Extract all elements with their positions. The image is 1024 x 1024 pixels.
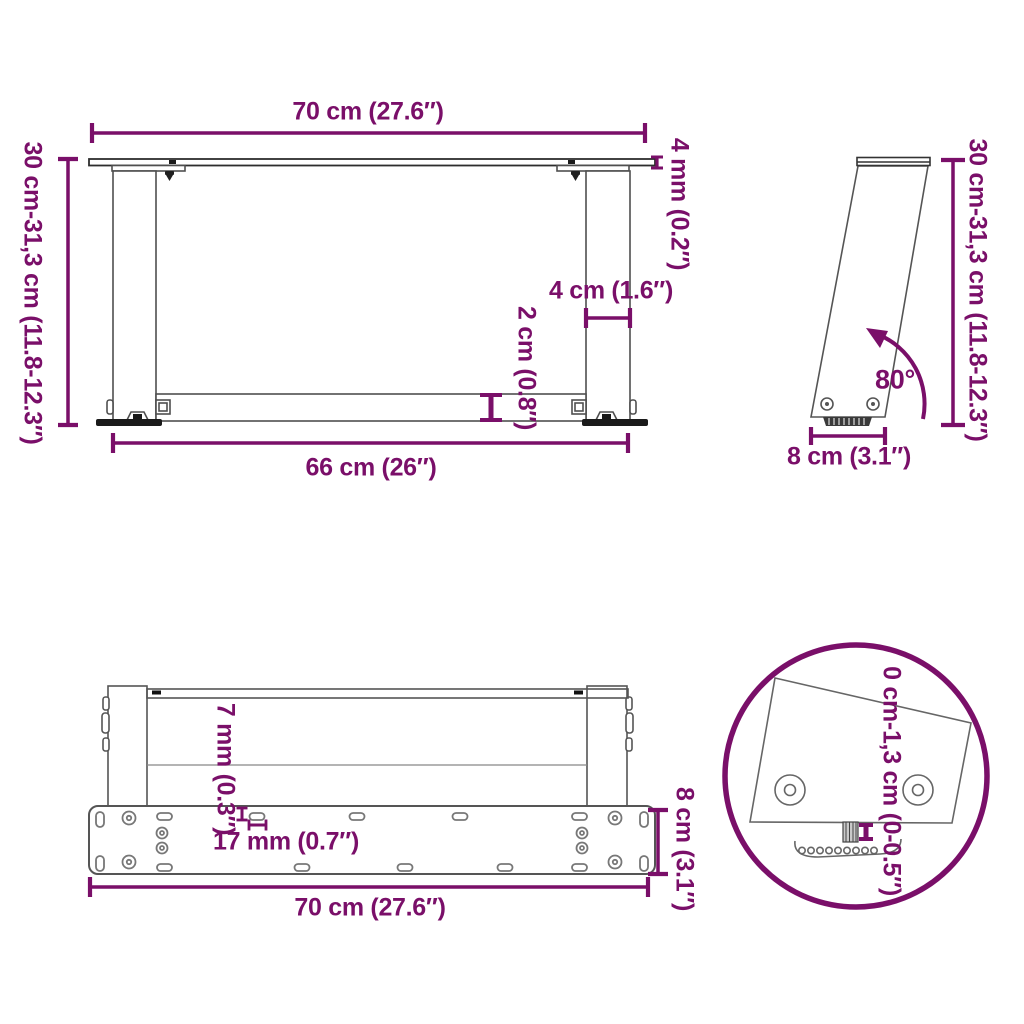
leg-tab-left bbox=[107, 400, 113, 414]
adjuster-bolt bbox=[843, 822, 858, 842]
tabletop-mark-right bbox=[568, 160, 575, 164]
bottom-leg-tabs bbox=[102, 697, 633, 751]
bottom-leg-right bbox=[587, 686, 627, 808]
dim-label-bar-thickness: 2 cm (0.8″) bbox=[512, 306, 541, 430]
mount-plate-left bbox=[112, 166, 185, 172]
dim-label-plate-depth: 8 cm (3.1″) bbox=[670, 787, 699, 911]
foot-left bbox=[96, 419, 162, 426]
leg-tab-right bbox=[630, 400, 636, 414]
front-leg-left bbox=[113, 171, 156, 420]
tabletop-mark-left bbox=[169, 160, 176, 164]
mounting-plate bbox=[89, 806, 655, 874]
dim-label-height-right: 30 cm-31,3 cm (11.8-12.3″) bbox=[963, 139, 992, 442]
dim-label-adjust-range: 0 cm-1,3 cm (0-0.5″) bbox=[877, 666, 906, 896]
dim-label-top-width: 70 cm (27.6″) bbox=[292, 98, 443, 127]
drawing-svg bbox=[0, 0, 1024, 1024]
dim-label-height-left: 30 cm-31,3 cm (11.8-12.3″) bbox=[18, 142, 47, 445]
dim-label-bottom-width: 70 cm (27.6″) bbox=[294, 894, 445, 923]
detail-dimension-lines bbox=[859, 825, 873, 839]
screw-icon bbox=[165, 171, 580, 181]
dim-label-slot-width: 7 mm (0.3″) bbox=[211, 703, 240, 835]
dim-label-slot-length: 17 mm (0.7″) bbox=[213, 828, 359, 857]
technical-drawing-canvas: 70 cm (27.6″) 30 cm-31,3 cm (11.8-12.3″)… bbox=[0, 0, 1024, 1024]
dim-label-leg-width: 4 cm (1.6″) bbox=[549, 277, 673, 306]
bottom-leg-left bbox=[108, 686, 147, 808]
bracket-right bbox=[572, 400, 586, 414]
detail-leg-end bbox=[750, 678, 971, 823]
side-glide-pad bbox=[823, 417, 872, 426]
bracket-left bbox=[156, 400, 170, 414]
angle-label: 80° bbox=[875, 365, 915, 396]
dim-label-side-depth: 8 cm (3.1″) bbox=[787, 443, 911, 472]
mount-plate-right bbox=[557, 166, 629, 172]
dim-label-top-thickness: 4 mm (0.2″) bbox=[665, 138, 694, 270]
foot-right bbox=[582, 419, 648, 426]
dim-label-inner-width: 66 cm (26″) bbox=[306, 454, 437, 483]
bottom-view bbox=[89, 686, 655, 874]
bottom-crossbar bbox=[147, 689, 628, 698]
detail-view bbox=[725, 645, 987, 907]
